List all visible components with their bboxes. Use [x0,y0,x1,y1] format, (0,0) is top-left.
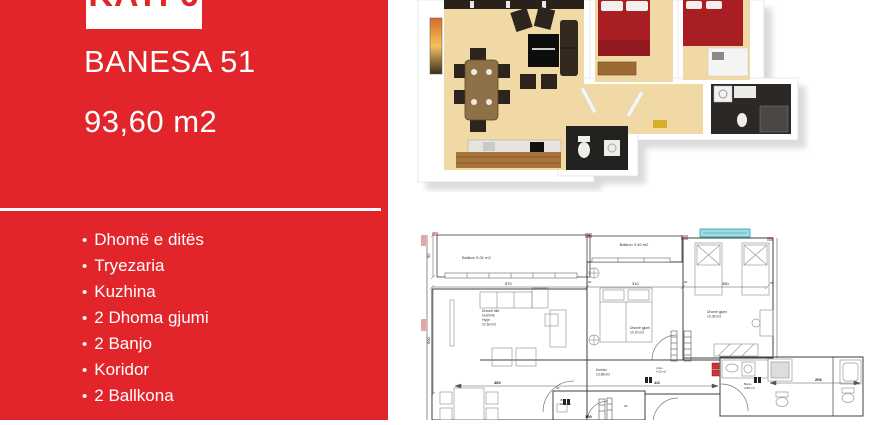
bedroom-2-furniture [695,243,773,356]
room-list-item: •Koridor [82,357,209,383]
label-living-4: 22.60 m2 [482,323,496,327]
label-bedroom-right-2: 10.36 m2 [707,315,721,319]
bedroom-1-3d [595,0,673,82]
room-list-item: •2 Ballkona [82,383,209,409]
room-list-item: •Tryezaria [82,253,209,279]
tv-unit [528,34,559,67]
label-balcony-top: Ballkon 3.40 m2 [620,242,649,247]
red-sidebar: KATI 6 BANESA 51 93,60 m2 •Dhomë e ditës… [0,0,388,420]
label-bedroom-right-1: Dhomë gjumi [707,310,727,314]
shower [760,106,788,132]
svg-text:25: 25 [770,281,774,285]
room-list: •Dhomë e ditës •Tryezaria •Kuzhina •2 Dh… [82,227,209,409]
label-bath-2: 4.85 m2 [744,386,755,390]
bullet-icon: • [82,388,87,405]
bullet-icon: • [82,310,87,327]
living-furniture [440,288,566,420]
svg-text:206: 206 [815,377,822,382]
bullet-icon: • [82,232,87,249]
room-labels: Ballkon 5.01 m2 Ballkon 3.40 m2 Dhomë di… [462,242,755,406]
dining-table [465,60,498,120]
label-balcony-left: Ballkon 5.01 m2 [462,255,491,260]
room-list-item: •Dhomë e ditës [82,227,209,253]
room-list-item: •2 Dhoma gjumi [82,305,209,331]
toilet [578,142,590,158]
label-living-1: Dhomë dite [482,309,499,313]
label-hall-2: 4.20 m2 [656,370,667,374]
label-bedroom-mid-1: Dhomë gjumi [630,326,650,330]
floor-badge: KATI 6 [86,0,202,29]
washing-machine [714,86,732,102]
bullet-icon: • [82,336,87,353]
label-corridor-2: 13.88 m2 [596,373,610,377]
kitchen-counter [468,140,561,154]
bullet-icon: • [82,284,87,301]
svg-text:90: 90 [426,253,431,258]
label-living-2: Guzhinë [482,314,495,318]
window-glazing [700,229,750,237]
svg-text:20: 20 [556,386,560,390]
floorplan-3d [408,0,860,192]
label-living-3: Hyrje [482,318,490,322]
wall-art [430,18,442,74]
bullet-icon: • [82,362,87,379]
floorplan-2d-drawing: 570 310 380 20 20 25 90 500 460 412 190 … [420,226,870,420]
living-room-3d [430,0,584,170]
floorplan-2d: 570 310 380 20 20 25 90 500 460 412 190 … [420,226,870,420]
flyer-page: { "flyer": { "floor_badge": "KATI 6", "t… [0,0,870,420]
apartment-title: BANESA 51 [84,44,256,80]
bathroom-3d [711,84,791,134]
white-divider [0,208,381,211]
svg-text:20: 20 [588,280,592,284]
svg-text:412: 412 [654,381,660,385]
svg-text:20: 20 [684,280,688,284]
svg-text:310: 310 [632,281,639,286]
floorplan-3d-render [408,0,860,192]
svg-text:380: 380 [722,281,729,286]
label-wc-2: 2.80 m2 [560,402,571,406]
dresser [598,62,636,75]
bathroom-fixtures [557,359,861,412]
svg-text:190: 190 [585,414,592,419]
bullet-icon: • [82,258,87,275]
label-bedroom-mid-2: 10.20 m2 [630,331,644,335]
apartment-area: 93,60 m2 [84,104,217,140]
wc-3d [566,126,628,170]
svg-text:500: 500 [426,337,431,344]
svg-text:460: 460 [494,380,501,385]
balcony-railings [445,258,670,278]
radiator [712,363,719,376]
wood-floor [456,152,561,168]
svg-text:20: 20 [624,404,628,408]
room-list-item: •Kuzhina [82,279,209,305]
room-list-item: •2 Banjo [82,331,209,357]
floor-badge-label: KATI 6 [86,0,202,12]
label-corridor-1: Koridor [596,368,608,372]
bedroom-2-3d [683,0,750,80]
svg-text:570: 570 [505,281,512,286]
